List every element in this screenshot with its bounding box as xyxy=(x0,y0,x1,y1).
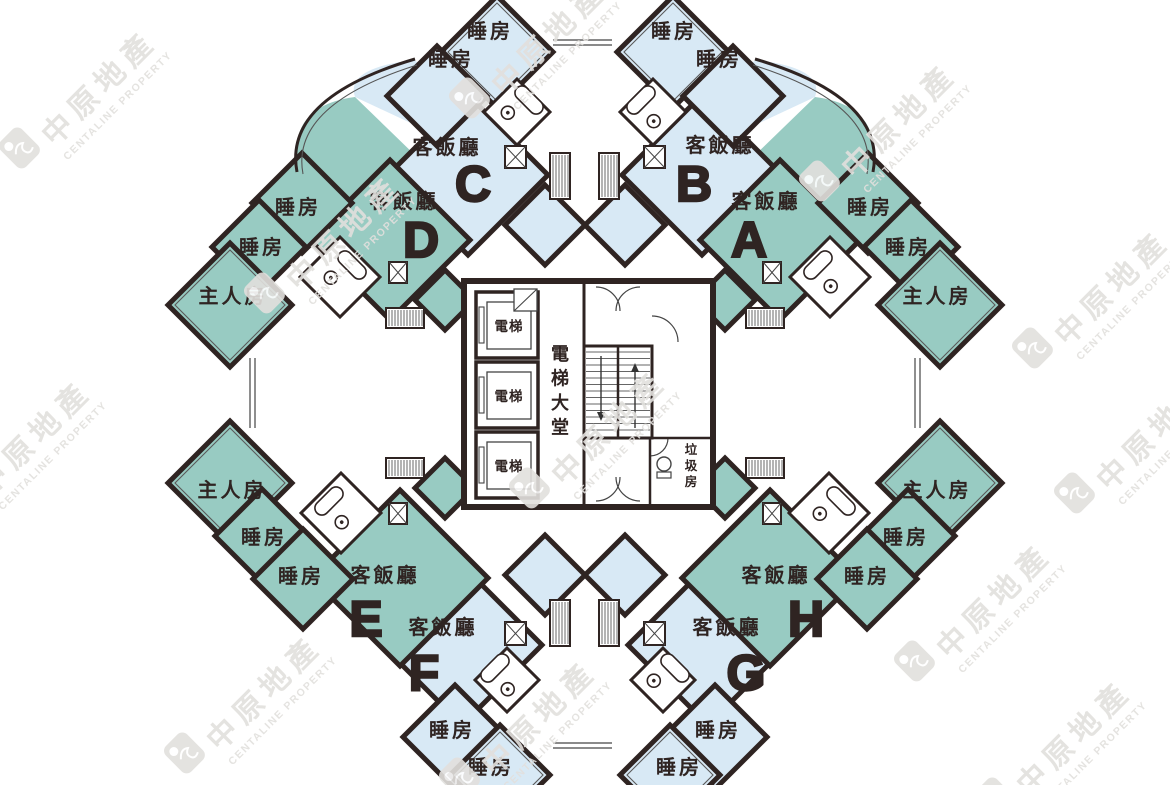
unit-D-bedroom-label: 睡房 xyxy=(275,195,321,219)
floorplan-canvas: 電梯電梯電梯客飯廳睡房睡房C客飯廳睡房睡房B客飯廳睡房睡房F客飯廳睡房睡房G客飯… xyxy=(0,0,1170,785)
unit-H-living-label: 客飯廳 xyxy=(741,563,811,587)
unit-G-letter: G xyxy=(727,645,766,701)
unit-G-bedroom-label: 睡房 xyxy=(695,718,741,742)
building-floorplan: 電梯電梯電梯客飯廳睡房睡房C客飯廳睡房睡房B客飯廳睡房睡房F客飯廳睡房睡房G客飯… xyxy=(0,0,1170,785)
unit-E-bedroom-label: 睡房 xyxy=(241,525,287,549)
refuse-room-label: 圾 xyxy=(685,458,698,473)
unit-A-bedroom-label: 睡房 xyxy=(885,235,931,259)
elevator-door xyxy=(479,377,484,413)
duct-box xyxy=(505,146,526,168)
refuse-room-label: 房 xyxy=(685,474,698,489)
unit-B-bedroom-label: 睡房 xyxy=(696,47,742,71)
unit-H-bedroom-label: 睡房 xyxy=(883,525,929,549)
duct-box xyxy=(644,622,665,645)
unit-F-bedroom-label: 睡房 xyxy=(429,718,475,742)
elevator-door xyxy=(479,447,484,483)
duct-box xyxy=(644,146,665,168)
unit-C-bedroom-label: 睡房 xyxy=(428,47,474,71)
louver-vent xyxy=(550,153,570,199)
toilet-icon xyxy=(657,457,671,471)
unit-C-bedroom-label: 睡房 xyxy=(467,19,513,43)
unit-F-letter: F xyxy=(409,645,440,701)
unit-B-living-label: 客飯廳 xyxy=(685,133,755,157)
unit-C-letter: C xyxy=(455,156,491,212)
unit-B-letter: B xyxy=(676,156,712,212)
unit-D-letter: D xyxy=(403,212,439,268)
louver-vent xyxy=(746,458,784,478)
refuse-room-label: 垃 xyxy=(685,442,698,457)
elevator-lobby-label: 梯 xyxy=(551,368,569,389)
louver-vent xyxy=(550,600,570,646)
louver-vent xyxy=(386,458,424,478)
louver-vent xyxy=(599,153,619,199)
unit-H-letter: H xyxy=(788,591,824,647)
unit-A-master-label: 主人房 xyxy=(903,284,972,308)
louver-vent xyxy=(599,600,619,646)
louver-vent xyxy=(386,308,424,328)
unit-G-bedroom-label: 睡房 xyxy=(656,755,702,779)
elevator-lobby-label: 大 xyxy=(551,392,569,413)
unit-H-bedroom-label: 睡房 xyxy=(844,564,890,588)
duct-box xyxy=(389,503,407,524)
elevator-label: 電梯 xyxy=(495,318,524,334)
louver-vent xyxy=(746,308,784,328)
duct-box xyxy=(505,622,526,645)
unit-E-master-label: 主人房 xyxy=(198,478,267,502)
elevator-label: 電梯 xyxy=(495,458,524,474)
unit-G-living-label: 客飯廳 xyxy=(692,615,762,639)
unit-E-living-label: 客飯廳 xyxy=(350,563,420,587)
unit-A-letter: A xyxy=(731,212,767,268)
duct-box xyxy=(763,503,781,524)
unit-A-living-label: 客飯廳 xyxy=(731,189,801,213)
toilet-tank-icon xyxy=(657,472,671,478)
unit-E-letter: E xyxy=(349,591,382,647)
elevator-door xyxy=(479,307,484,343)
elevator-cell: 電梯 xyxy=(476,362,538,428)
unit-B-bedroom-label: 睡房 xyxy=(651,19,697,43)
unit-D-bedroom-label: 睡房 xyxy=(239,235,285,259)
elevator-lobby-label: 堂 xyxy=(551,417,569,438)
unit-E-bedroom-label: 睡房 xyxy=(278,564,324,588)
unit-A-bedroom-label: 睡房 xyxy=(847,195,893,219)
elevator-label: 電梯 xyxy=(495,388,524,404)
elevator-lobby-label: 電 xyxy=(551,344,569,364)
unit-H-master-label: 主人房 xyxy=(903,478,972,502)
unit-F-living-label: 客飯廳 xyxy=(408,615,478,639)
